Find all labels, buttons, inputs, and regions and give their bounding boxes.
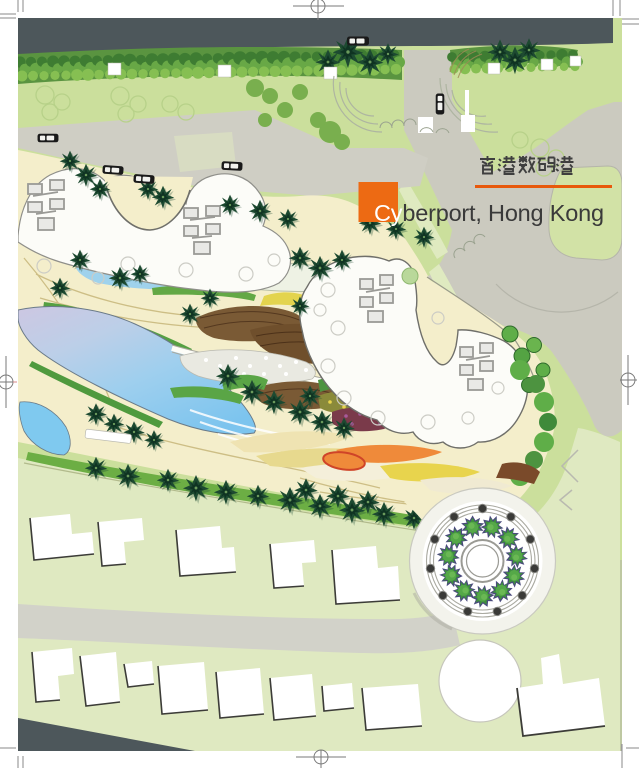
svg-text:Cyberport, Hong Kong: Cyberport, Hong Kong [374, 200, 604, 226]
